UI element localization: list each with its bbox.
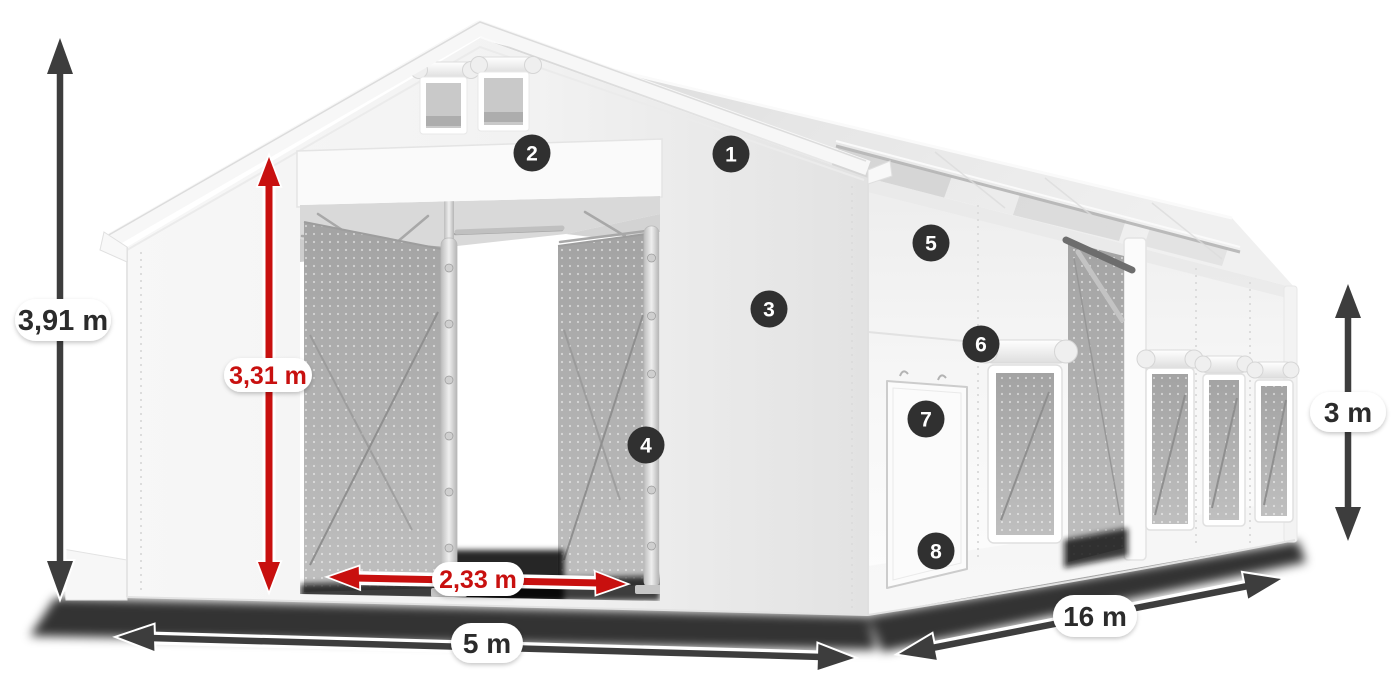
side-opening-mesh-dots xyxy=(1068,242,1124,562)
interior-mesh-right xyxy=(558,234,646,589)
column-body xyxy=(644,226,659,588)
front-door-opening xyxy=(300,196,667,601)
dim-total-height-label: 3,91 m xyxy=(15,299,111,341)
dim-inner-height-value: 3,31 m xyxy=(229,362,307,390)
side-window-far-3 xyxy=(1247,362,1299,522)
rollup-tube-cap xyxy=(1055,340,1078,363)
badge-number: 3 xyxy=(763,299,775,322)
dim-total-height-value: 3,91 m xyxy=(18,305,108,337)
column-body xyxy=(441,238,457,592)
column-upper xyxy=(444,198,454,240)
interior-mesh-left xyxy=(304,222,441,592)
badge-number: 1 xyxy=(725,144,737,167)
badge-number: 6 xyxy=(975,334,987,357)
rollup-tube-cap xyxy=(525,57,542,74)
side-window-far-1 xyxy=(1137,350,1203,530)
callout-badge-7: 7 xyxy=(908,401,945,438)
door-lintel-beam xyxy=(297,139,662,207)
callout-badge-3: 3 xyxy=(751,291,788,328)
side-window-near xyxy=(975,340,1078,543)
tent-illustration xyxy=(57,22,1299,615)
badge-number: 2 xyxy=(526,143,538,166)
dim-inner-height-label: 3,31 m xyxy=(224,358,312,392)
dim-front-width-value: 5 m xyxy=(463,628,511,659)
rollup-tube-cap xyxy=(471,57,488,74)
rollup-tube-cap xyxy=(1195,356,1211,372)
dim-side-length-value: 16 m xyxy=(1063,601,1127,632)
callout-badge-5: 5 xyxy=(913,225,950,262)
badge-number: 5 xyxy=(925,233,937,256)
callout-badge-1: 1 xyxy=(713,136,750,173)
callout-badge-4: 4 xyxy=(628,427,665,464)
dim-door-width-label: 2,33 m xyxy=(432,562,524,596)
arrowhead-up xyxy=(47,38,73,74)
callout-badge-6: 6 xyxy=(963,326,1000,363)
badge-number: 7 xyxy=(920,409,932,432)
badge-number: 4 xyxy=(640,435,652,458)
window-sill-bar xyxy=(484,112,523,122)
tent-dimension-diagram: 3,91 m 3,31 m 2,33 m 5 m 16 m 3 m 1 xyxy=(0,0,1400,700)
dim-side-height-label: 3 m xyxy=(1310,392,1386,432)
side-opening xyxy=(1066,240,1132,562)
dim-side-height-value: 3 m xyxy=(1324,397,1372,428)
dim-door-width-value: 2,33 m xyxy=(439,566,517,594)
side-door-rail-column xyxy=(1124,238,1146,560)
rollup-tube-cap xyxy=(1283,362,1299,378)
arrowhead-down xyxy=(1335,507,1361,541)
arrowhead-up xyxy=(1335,284,1361,318)
window-sill-bar xyxy=(426,116,461,126)
rollup-tube-cap xyxy=(1137,350,1155,368)
callout-badge-8: 8 xyxy=(918,533,955,570)
rollup-tube-cap xyxy=(1247,362,1263,378)
dim-side-length-label: 16 m xyxy=(1053,595,1137,637)
tent-diagram-stage: 3,91 m 3,31 m 2,33 m 5 m 16 m 3 m 1 xyxy=(0,0,1400,700)
dim-front-width-label: 5 m xyxy=(451,623,523,663)
side-window-far-2 xyxy=(1195,356,1253,526)
callout-badge-2: 2 xyxy=(514,135,551,172)
badge-number: 8 xyxy=(930,541,942,564)
